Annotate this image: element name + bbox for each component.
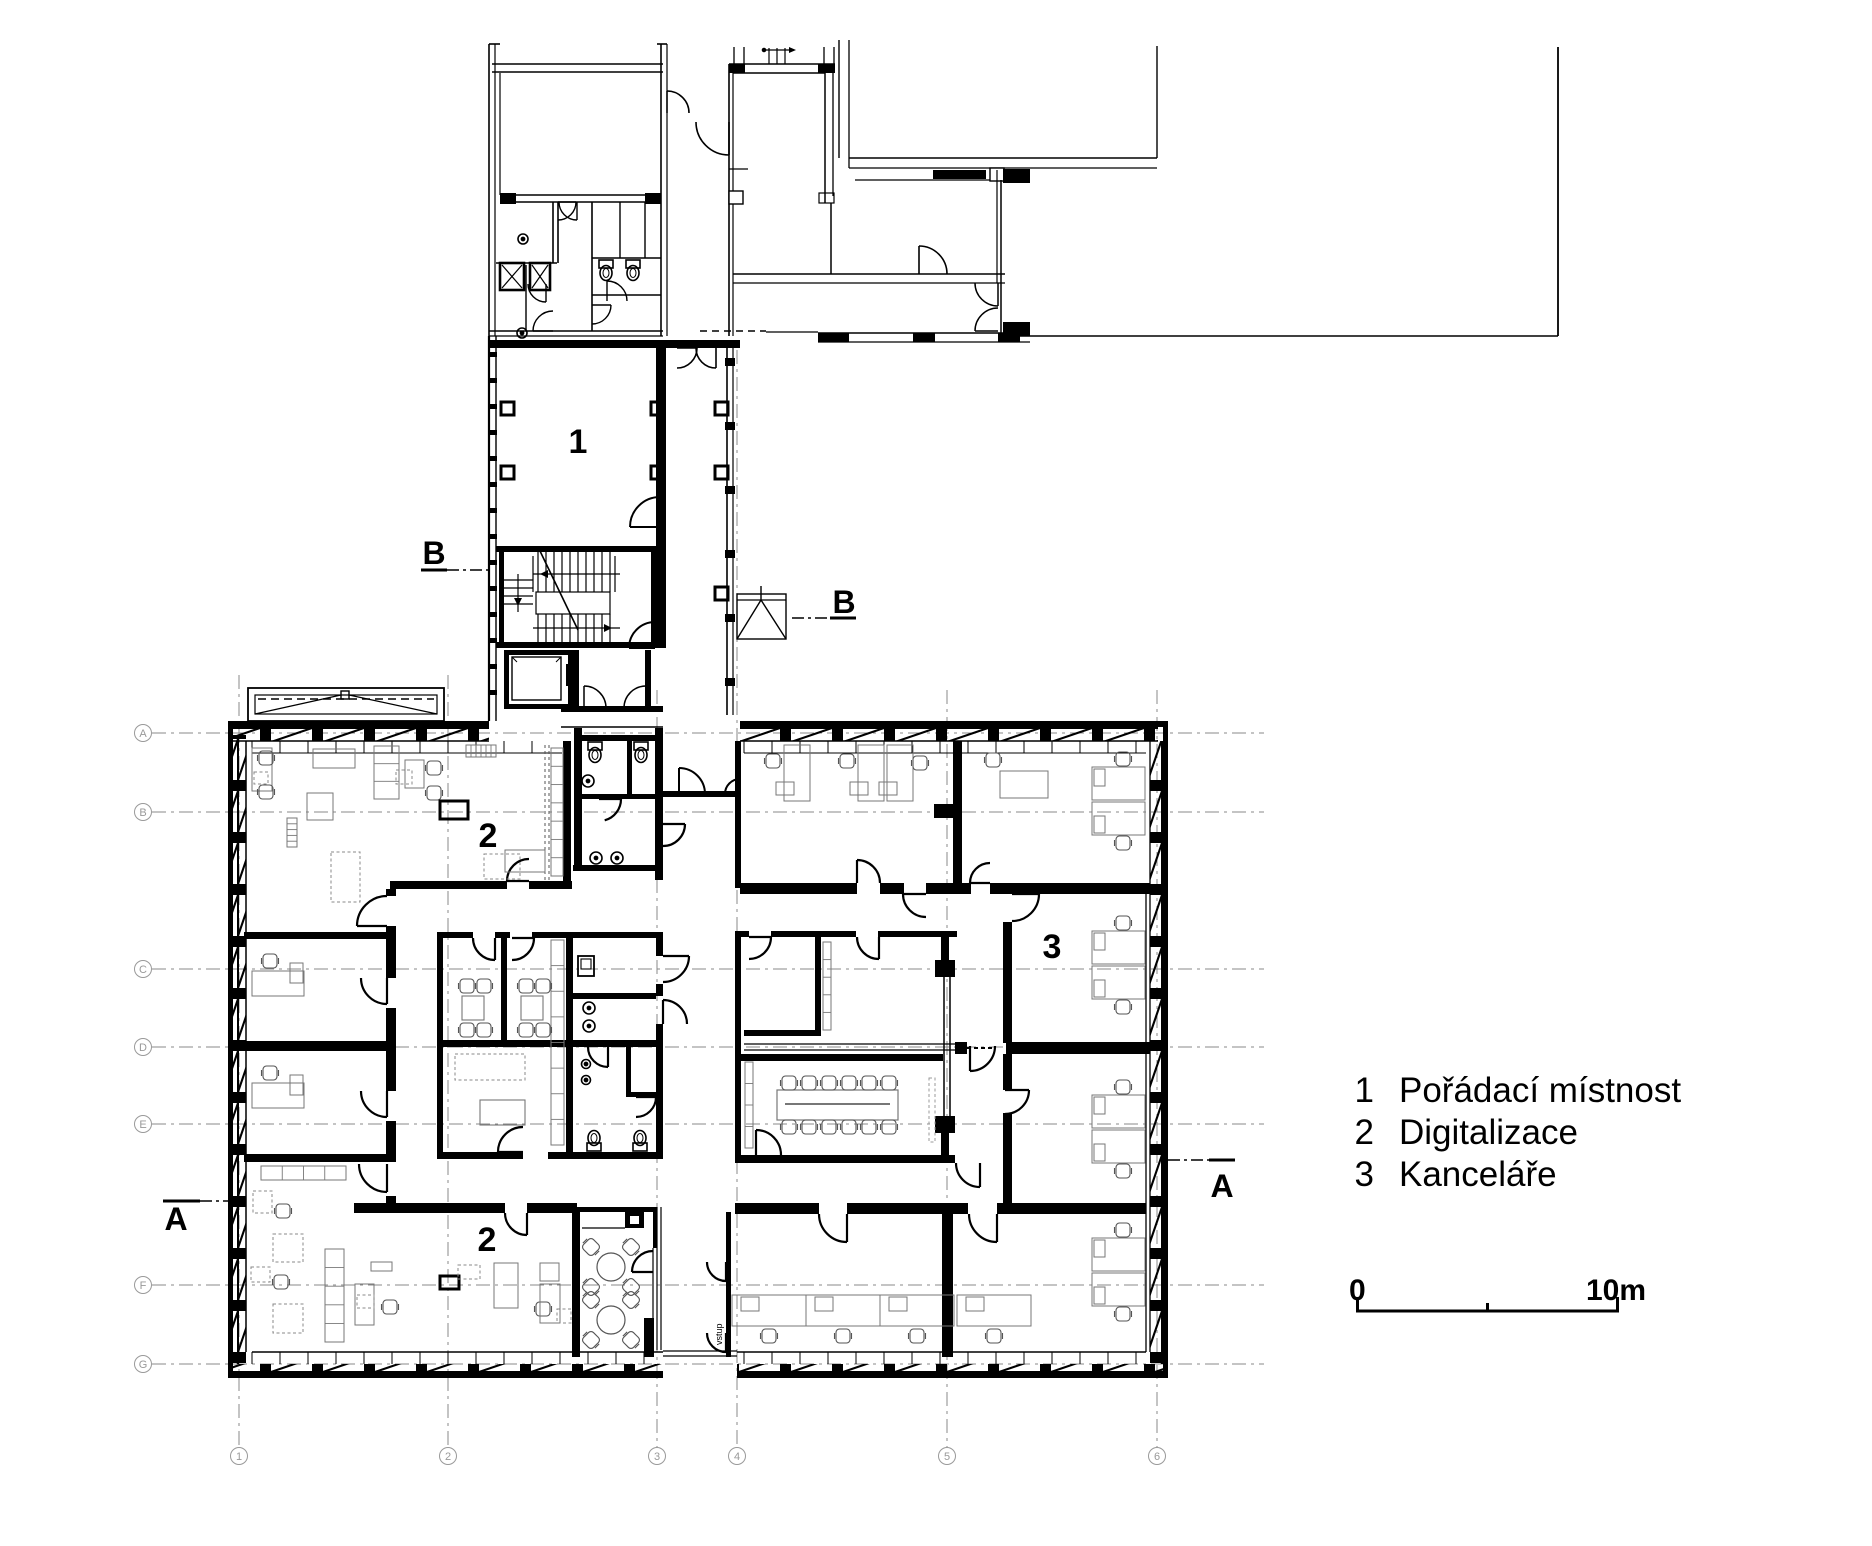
- svg-text:E: E: [139, 1119, 146, 1131]
- svg-text:2: 2: [478, 1221, 497, 1259]
- svg-text:vstup: vstup: [714, 1323, 724, 1345]
- svg-text:F: F: [140, 1280, 147, 1292]
- svg-text:3: 3: [654, 1451, 660, 1463]
- svg-text:A: A: [1210, 1168, 1233, 1204]
- svg-text:2: 2: [1355, 1113, 1374, 1152]
- svg-text:3: 3: [1043, 928, 1062, 966]
- svg-text:1: 1: [236, 1451, 242, 1463]
- svg-text:B: B: [422, 535, 445, 571]
- svg-text:C: C: [139, 964, 147, 976]
- svg-text:3: 3: [1355, 1155, 1374, 1194]
- svg-text:D: D: [139, 1042, 147, 1054]
- svg-text:6: 6: [1154, 1451, 1160, 1463]
- svg-text:Pořádací místnost: Pořádací místnost: [1399, 1071, 1681, 1110]
- svg-text:5: 5: [944, 1451, 950, 1463]
- svg-text:A: A: [139, 728, 147, 740]
- svg-text:1: 1: [1355, 1071, 1374, 1110]
- svg-text:A: A: [164, 1201, 187, 1237]
- svg-text:1: 1: [569, 423, 588, 461]
- svg-text:2: 2: [445, 1451, 451, 1463]
- svg-text:Kanceláře: Kanceláře: [1399, 1155, 1557, 1194]
- svg-text:2: 2: [479, 817, 498, 855]
- svg-text:10m: 10m: [1586, 1274, 1646, 1307]
- svg-text:G: G: [139, 1359, 148, 1371]
- svg-text:4: 4: [734, 1451, 740, 1463]
- svg-text:B: B: [139, 807, 146, 819]
- svg-text:Digitalizace: Digitalizace: [1399, 1113, 1578, 1152]
- svg-text:B: B: [832, 584, 855, 620]
